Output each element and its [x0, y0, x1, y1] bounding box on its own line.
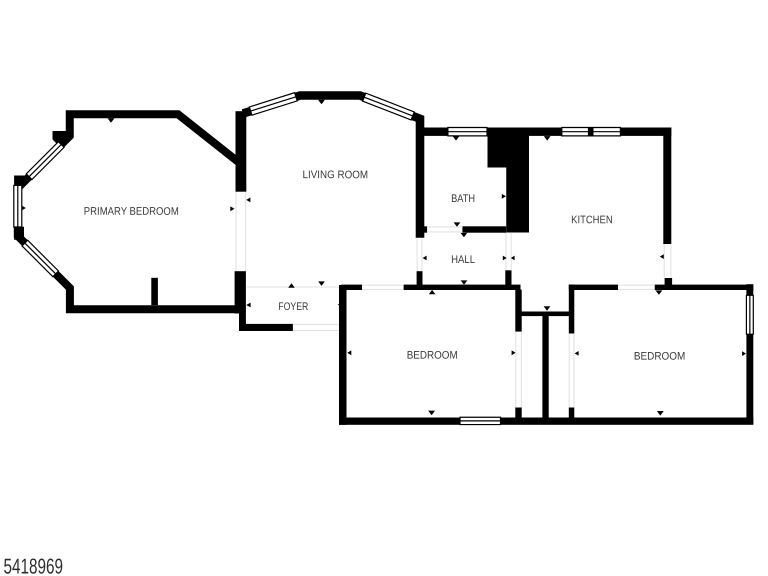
svg-text:KITCHEN: KITCHEN — [571, 214, 613, 226]
svg-text:LIVING ROOM: LIVING ROOM — [303, 169, 369, 181]
svg-text:BEDROOM: BEDROOM — [634, 351, 686, 363]
svg-text:PRIMARY BEDROOM: PRIMARY BEDROOM — [84, 206, 179, 218]
svg-text:BEDROOM: BEDROOM — [407, 350, 458, 362]
svg-text:5418969: 5418969 — [3, 555, 63, 576]
svg-text:BATH: BATH — [451, 193, 475, 205]
svg-text:HALL: HALL — [451, 254, 475, 266]
svg-text:FOYER: FOYER — [278, 301, 308, 313]
